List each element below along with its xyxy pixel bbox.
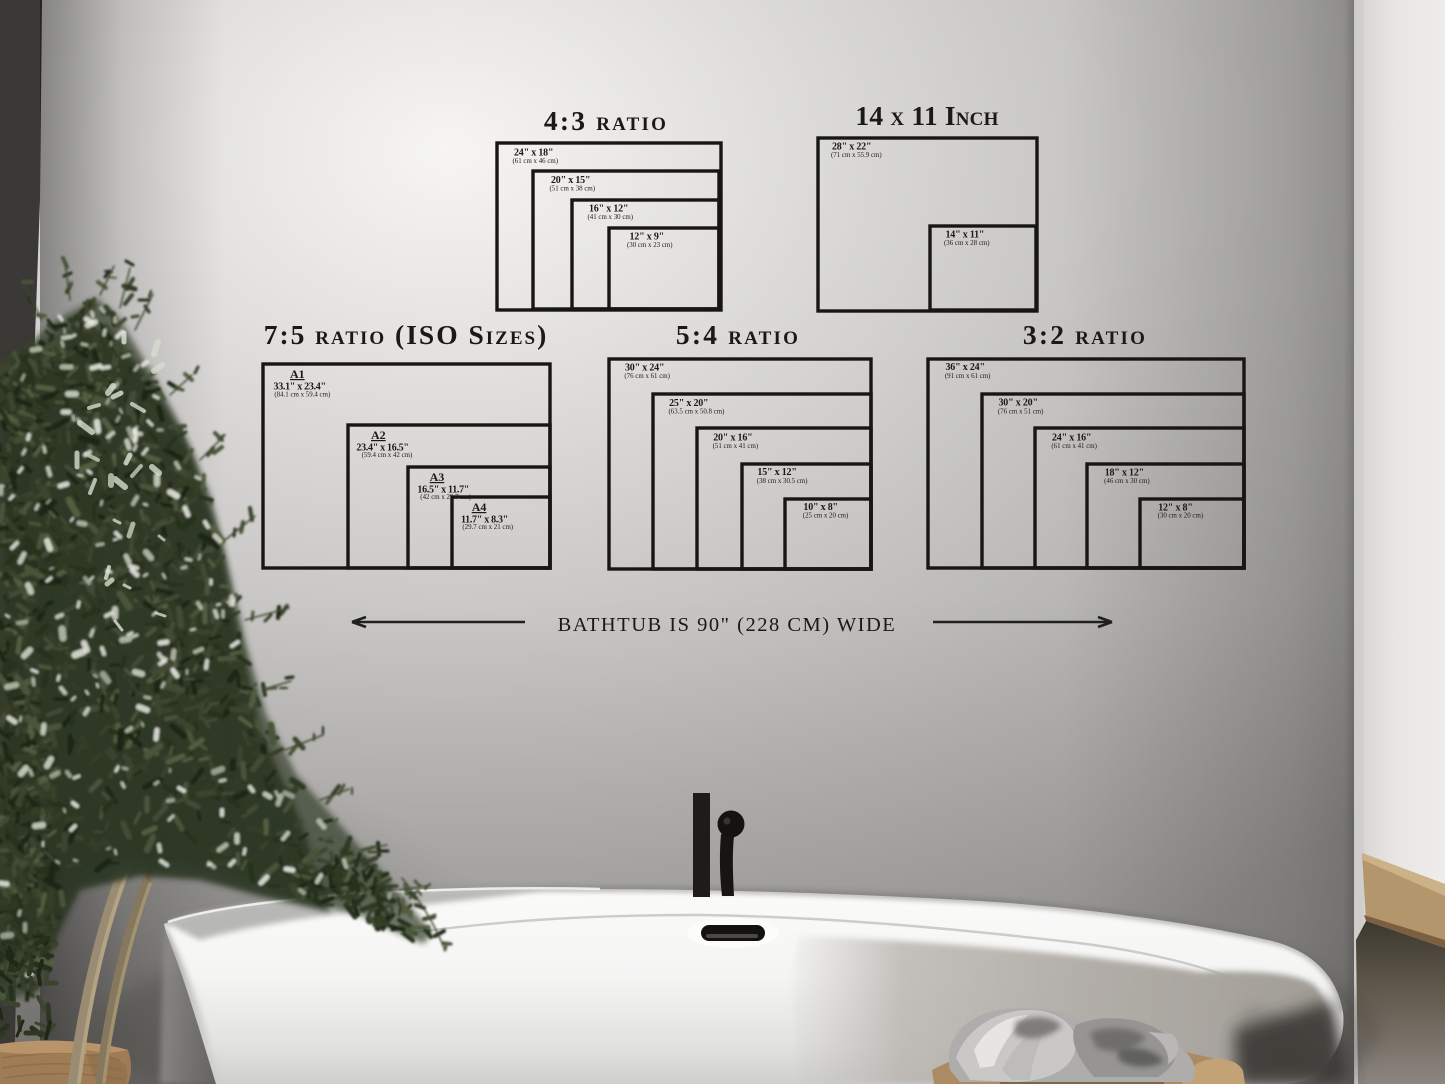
svg-text:(84.1 cm x 59.4 cm): (84.1 cm x 59.4 cm)	[274, 391, 330, 398]
svg-text:(76 cm x 51 cm): (76 cm x 51 cm)	[998, 408, 1044, 415]
svg-text:(25 cm x 20 cm): (25 cm x 20 cm)	[803, 513, 849, 520]
svg-text:30" x 20": 30" x 20"	[999, 398, 1038, 409]
svg-text:20" x 15": 20" x 15"	[551, 175, 590, 186]
svg-text:(36 cm x 28 cm): (36 cm x 28 cm)	[944, 240, 990, 247]
svg-text:(41 cm x 30 cm): (41 cm x 30 cm)	[588, 214, 634, 221]
svg-text:14 x 11 Inch: 14 x 11 Inch	[855, 100, 998, 131]
svg-text:A3: A3	[430, 470, 445, 484]
svg-text:(30 cm x 23 cm): (30 cm x 23 cm)	[627, 242, 673, 249]
svg-text:36" x 24": 36" x 24"	[946, 362, 985, 373]
svg-text:5:4 ratio: 5:4 ratio	[676, 319, 800, 350]
svg-text:A1: A1	[290, 367, 305, 381]
svg-text:25" x 20": 25" x 20"	[669, 398, 708, 409]
svg-text:(29.7 cm x 21 cm): (29.7 cm x 21 cm)	[462, 524, 513, 531]
svg-text:24" x 16": 24" x 16"	[1052, 432, 1091, 443]
svg-text:(51 cm x 41 cm): (51 cm x 41 cm)	[713, 443, 759, 450]
svg-text:7:5 ratio (ISO Sizes): 7:5 ratio (ISO Sizes)	[264, 319, 548, 350]
svg-text:BATHTUB IS 90" (228 CM) WIDE: BATHTUB IS 90" (228 CM) WIDE	[558, 614, 897, 636]
svg-text:(71 cm x 55.9 cm): (71 cm x 55.9 cm)	[831, 152, 882, 159]
svg-text:4:3 ratio: 4:3 ratio	[544, 105, 668, 136]
svg-text:(30 cm x 20 cm): (30 cm x 20 cm)	[1158, 513, 1204, 520]
svg-text:(59.4 cm x 42 cm): (59.4 cm x 42 cm)	[362, 452, 413, 459]
svg-text:(91 cm x 61 cm): (91 cm x 61 cm)	[945, 373, 991, 380]
svg-text:16" x 12": 16" x 12"	[589, 204, 628, 215]
svg-text:10" x 8": 10" x 8"	[803, 502, 838, 513]
svg-text:3:2 ratio: 3:2 ratio	[1023, 319, 1147, 350]
svg-text:(61 cm x 41 cm): (61 cm x 41 cm)	[1051, 443, 1097, 450]
svg-text:(38 cm x 30.5 cm): (38 cm x 30.5 cm)	[757, 478, 808, 485]
svg-text:A4: A4	[472, 500, 487, 514]
svg-text:20" x 16": 20" x 16"	[713, 432, 752, 443]
svg-text:14" x 11": 14" x 11"	[946, 230, 985, 241]
svg-text:18" x 12": 18" x 12"	[1105, 467, 1144, 478]
svg-text:28" x 22": 28" x 22"	[832, 142, 871, 153]
svg-text:A2: A2	[371, 428, 386, 442]
svg-text:24" x 18": 24" x 18"	[514, 148, 553, 159]
svg-text:(61 cm x 46 cm): (61 cm x 46 cm)	[513, 158, 559, 165]
svg-text:(46 cm x 30 cm): (46 cm x 30 cm)	[1104, 478, 1150, 485]
svg-text:(42 cm x 29.7 cm): (42 cm x 29.7 cm)	[420, 494, 471, 501]
svg-text:(63.5 cm x 50.8 cm): (63.5 cm x 50.8 cm)	[669, 408, 725, 415]
svg-text:30" x 24": 30" x 24"	[625, 363, 664, 374]
svg-text:12" x 9": 12" x 9"	[630, 232, 665, 243]
svg-text:15" x 12": 15" x 12"	[757, 467, 796, 478]
svg-text:(76 cm x 61 cm): (76 cm x 61 cm)	[624, 373, 670, 380]
svg-text:(51 cm x 38 cm): (51 cm x 38 cm)	[550, 186, 596, 193]
